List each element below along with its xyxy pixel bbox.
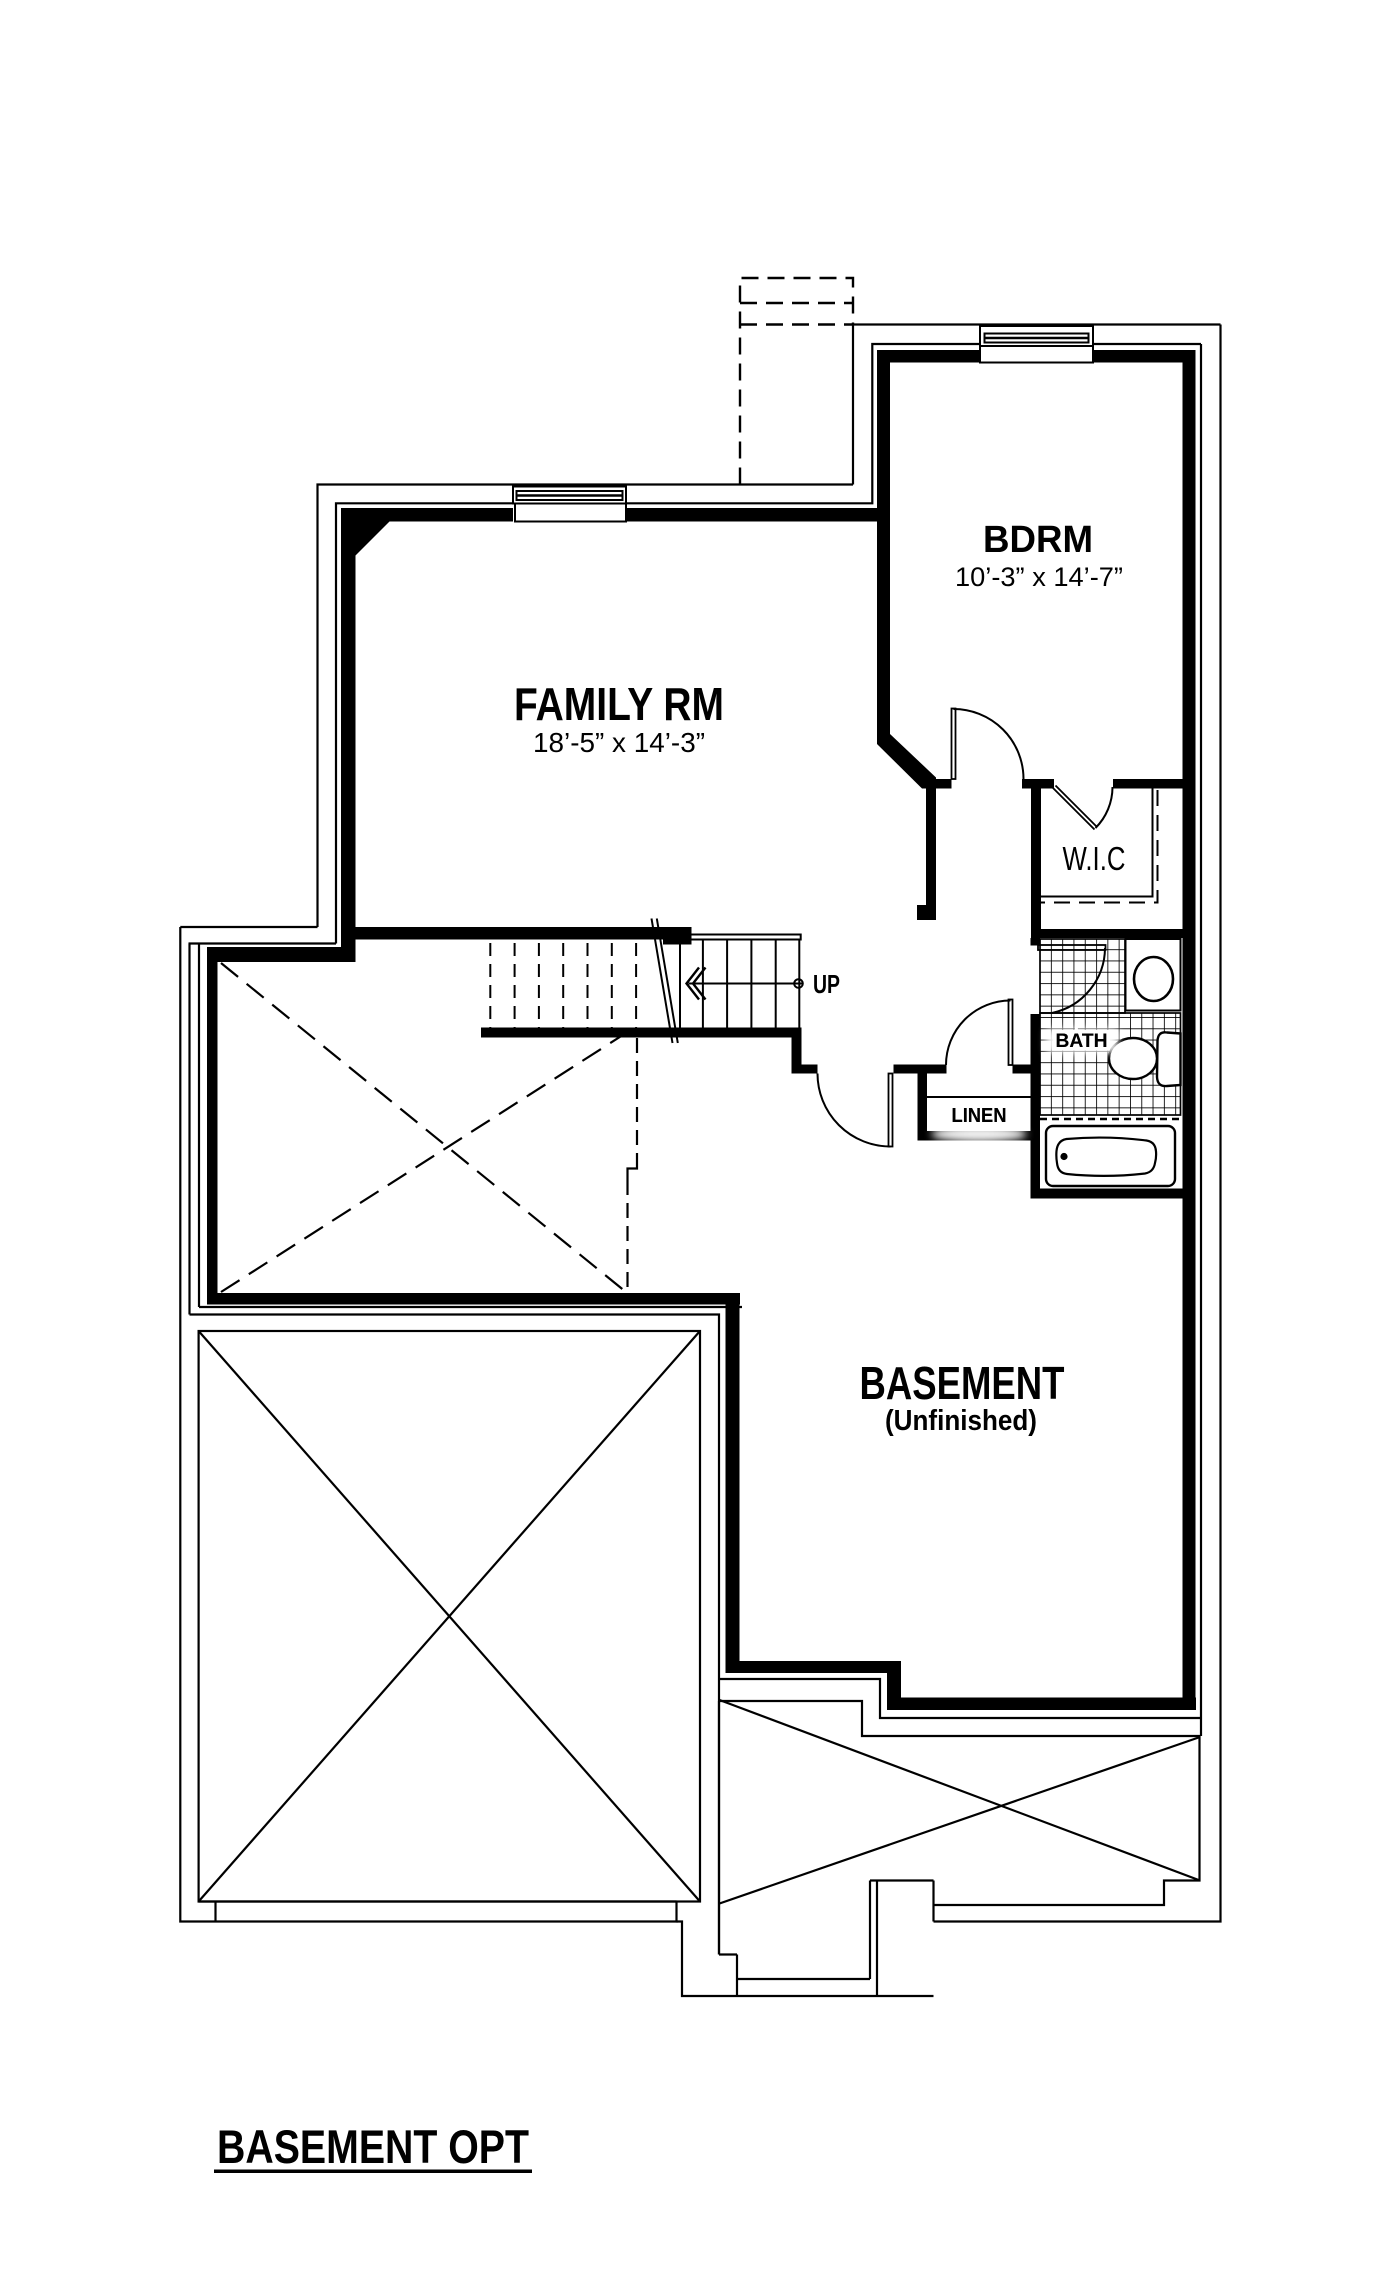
- svg-text:(Unfinished): (Unfinished): [885, 1405, 1037, 1437]
- svg-text:BASEMENT OPT: BASEMENT OPT: [217, 2120, 529, 2173]
- svg-text:BATH: BATH: [1056, 1031, 1108, 1052]
- svg-text:FAMILY RM: FAMILY RM: [514, 678, 724, 730]
- svg-text:W.I.C: W.I.C: [1063, 840, 1126, 877]
- svg-text:BASEMENT: BASEMENT: [860, 1357, 1065, 1409]
- svg-text:18’-5” x 14’-3”: 18’-5” x 14’-3”: [533, 727, 705, 758]
- svg-text:UP: UP: [813, 969, 840, 999]
- svg-text:LINEN: LINEN: [952, 1105, 1007, 1127]
- svg-text:10’-3” x 14’-7”: 10’-3” x 14’-7”: [955, 562, 1123, 592]
- svg-text:BDRM: BDRM: [983, 519, 1093, 561]
